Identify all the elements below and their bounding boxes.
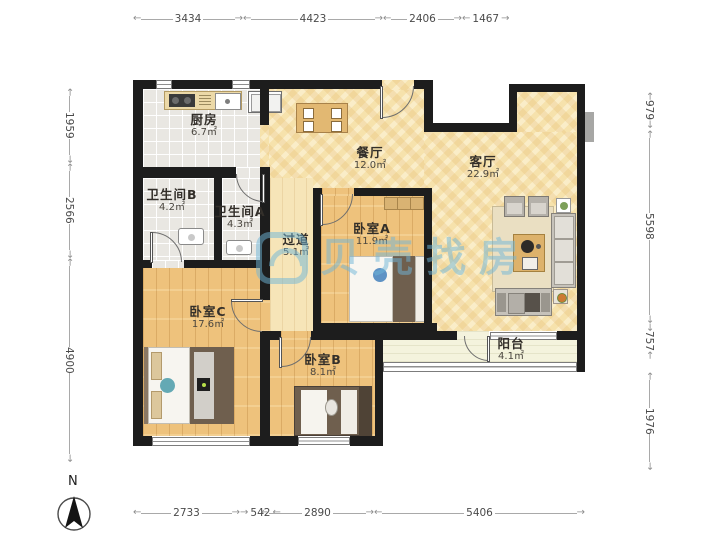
pillow-icon — [325, 399, 338, 416]
dimension-top-3: 2406 — [383, 12, 462, 26]
room-label-kitchen: 厨房 6.7㎡ — [190, 113, 217, 139]
dimension-top-2: 4423 — [243, 12, 383, 26]
dimension-bottom-3: 2890 — [261, 506, 374, 520]
tv-icon — [197, 378, 210, 391]
armchair — [528, 196, 549, 217]
washbasin-icon — [226, 240, 252, 255]
bedroom-a-door-leaf — [320, 194, 323, 226]
floor-plan: 厨房 6.7㎡ 餐厅 12.0㎡ 客厅 22.9㎡ 卫生间B 4.2㎡ 卫生间A… — [0, 0, 720, 540]
room-label-bedroom-b: 卧室B 8.1㎡ — [304, 353, 342, 379]
dimension-bottom-4: 5406 — [374, 506, 585, 520]
dimension-right-2: 5598 — [642, 130, 656, 323]
dimension-bottom-2: 542 — [240, 506, 261, 520]
bedroom-b-door-leaf — [279, 337, 282, 368]
bathroom-b-door-leaf — [150, 232, 153, 263]
stove-icon — [169, 94, 195, 107]
dimension-bottom-1: 2733 — [133, 506, 240, 520]
dimension-top-4: 1467 — [462, 12, 508, 26]
dimension-right-1: 979 — [642, 92, 656, 130]
window — [232, 80, 250, 89]
window — [298, 437, 350, 445]
room-label-bathroom-b: 卫生间B 4.2㎡ — [146, 188, 197, 214]
room-label-dining: 餐厅 12.0㎡ — [354, 146, 386, 172]
wall — [577, 84, 585, 372]
wall — [250, 436, 298, 446]
plant-icon — [557, 293, 567, 303]
wall — [414, 80, 424, 89]
pillow-icon — [151, 352, 162, 380]
beike-logo-icon — [256, 232, 308, 284]
wall — [260, 331, 281, 340]
armchair — [504, 196, 525, 217]
wall — [509, 84, 585, 92]
window — [152, 437, 250, 446]
living-floor-upper — [517, 92, 577, 132]
pillow-icon — [160, 378, 175, 393]
plant-table — [553, 289, 568, 304]
sink-icon — [215, 93, 241, 110]
wall — [311, 331, 457, 340]
wall — [354, 188, 432, 196]
compass-icon — [54, 492, 94, 534]
bed-bedroom-c — [144, 347, 234, 424]
pillow-icon — [151, 391, 162, 419]
ac-platform — [585, 112, 594, 142]
wardrobe — [384, 197, 424, 210]
wall — [260, 332, 270, 446]
wall — [375, 340, 383, 446]
side-table — [556, 198, 571, 213]
wall — [557, 331, 577, 340]
wall — [350, 436, 383, 446]
wall — [260, 89, 269, 125]
dimension-left-3: 4900 — [62, 258, 76, 462]
loveseat — [495, 288, 552, 316]
kitchen-counter — [164, 91, 242, 110]
room-label-bathroom-a: 卫生间A 4.3㎡ — [214, 205, 265, 231]
balcony-door-leaf — [487, 336, 490, 362]
dimension-left-1: 1959 — [62, 88, 76, 163]
wall — [133, 167, 236, 178]
watermark-text: 贝壳找房 — [320, 238, 532, 278]
bed-bedroom-b — [294, 386, 372, 436]
room-label-balcony: 阳台 4.1㎡ — [497, 337, 524, 363]
kitchen-vent-icon — [199, 95, 211, 105]
sofa — [551, 213, 576, 288]
dining-table — [296, 103, 348, 133]
bathroom-a-door-leaf — [262, 174, 265, 203]
wall — [133, 436, 152, 446]
window — [156, 80, 172, 89]
wall — [424, 123, 517, 132]
plant-icon — [560, 202, 568, 210]
room-label-living: 客厅 22.9㎡ — [467, 155, 499, 181]
compass-north-label: N — [68, 474, 78, 489]
washbasin-icon — [178, 228, 204, 245]
balcony-window — [383, 362, 577, 372]
entry-door-leaf — [380, 86, 383, 119]
dimension-left-2: 2566 — [62, 163, 76, 258]
kitchen-opening — [260, 125, 269, 167]
dimension-right-3: 757 — [642, 323, 656, 372]
room-label-bedroom-c: 卧室C 17.6㎡ — [189, 305, 226, 331]
dimension-top-1: 3434 — [133, 12, 243, 26]
dimension-right-4: 1976 — [642, 372, 656, 470]
watermark: 贝壳找房 — [256, 232, 532, 284]
bedroom-c-door-leaf — [231, 299, 263, 302]
